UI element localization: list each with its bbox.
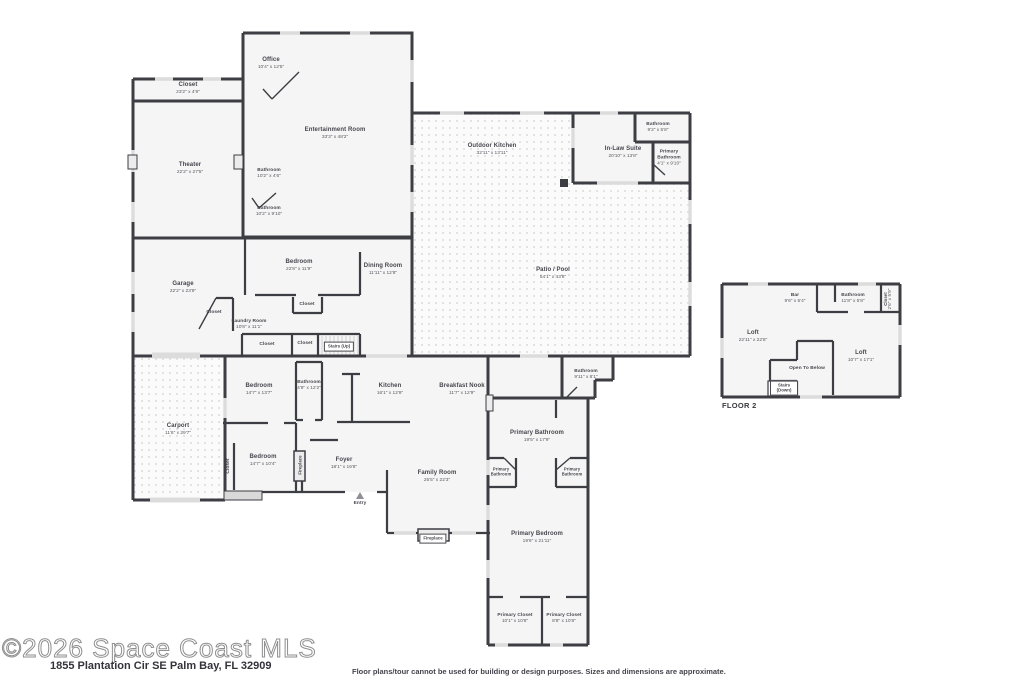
room-label-outdoor-kitchen: Outdoor Kitchen 32'11" x 13'11" (468, 143, 517, 157)
room-label-bath-lower: Bathroom 10'2" x 9'10" (256, 206, 282, 218)
room-label-f2-loft-main: Loft 22'11" x 22'8" (739, 330, 768, 344)
room-label-family-room: Family Room 25'5" x 22'3" (418, 470, 457, 484)
room-label-primary-bath-wc-left: Primary Bathroom (487, 467, 515, 478)
room-label-carport: Carport 11'6" x 29'7" (165, 423, 191, 437)
room-label-f2-bathroom: Bathroom 11'8" x 5'8" (841, 293, 864, 305)
room-label-entertainment: Entertainment Room 33'3" x 48'2" (305, 127, 366, 141)
disclaimer-text: Floor plans/tour cannot be used for buil… (352, 667, 726, 676)
entry-direction-icon (356, 492, 364, 499)
room-label-bath-upper: Bathroom 10'2" x 4'6" (257, 168, 281, 180)
column-post (560, 179, 568, 187)
room-label-inlaw-bath: Bathroom 9'2" x 5'8" (646, 122, 669, 134)
room-label-closet-garage: Closet (206, 310, 221, 316)
room-label-foyer: Foyer 18'1" x 16'8" (331, 457, 357, 471)
room-label-inlaw-primary-bath: Primary Bathroom 4'1" x 9'10" (654, 150, 684, 169)
room-label-closet-bedroom-low: Closet (226, 458, 232, 473)
room-label-stairs-up: Stairs (Up) (324, 334, 354, 355)
room-label-bedroom-top: Bedroom 22'8" x 11'9" (285, 259, 312, 273)
room-label-laundry: Laundry Room 10'8" x 11'1" (231, 319, 266, 331)
room-label-primary-closet-right: Primary Closet 8'8" x 10'8" (546, 613, 581, 625)
room-label-bath-hall: Bathroom 9'11" x 8'1" (574, 369, 597, 381)
room-label-f2-stairs-down: Stairs (Down) (770, 378, 796, 399)
room-label-primary-bedroom: Primary Bedroom 19'6" x 21'11" (511, 531, 563, 545)
room-label-office: Office 10'4" x 12'5" (258, 57, 284, 71)
room-label-theater: Theater 22'2" x 27'5" (177, 162, 203, 176)
room-label-f2-closet: Closet 2'6" x 5'9" (883, 289, 895, 310)
room-label-closet-top: Closet 23'2" x 4'9" (176, 82, 200, 96)
room-label-breakfast-nook: Breakfast Nook 11'7" x 12'9" (439, 383, 484, 397)
room-label-f2-loft-right: Loft 10'7" x 17'1" (848, 350, 874, 364)
room-label-closet-hall-small: Closet (297, 341, 312, 347)
room-label-bath-mid: Bathroom 4'9" x 12'2" (297, 380, 321, 392)
room-label-primary-bath-wc-right: Primary Bathroom (558, 467, 586, 478)
room-label-closet-hall-wide: Closet (259, 342, 274, 348)
room-label-bedroom-low: Bedroom 14'7" x 10'4" (249, 454, 276, 468)
room-fills (133, 33, 900, 645)
room-label-fireplace-family: Fireplace (419, 526, 446, 547)
room-label-inlaw-suite: In-Law Suite 20'10" x 13'8" (605, 146, 642, 160)
floor2-title: FLOOR 2 (722, 401, 757, 410)
room-label-kitchen: Kitchen 16'1" x 12'9" (377, 383, 403, 397)
property-address: 1855 Plantation Cir SE Palm Bay, FL 3290… (50, 660, 272, 672)
floorplan-drawing (0, 0, 1024, 683)
room-label-entry: Entry (354, 501, 367, 507)
room-label-garage: Garage 22'2" x 23'9" (170, 281, 196, 295)
room-label-f2-open-to-below: Open To Below (789, 366, 825, 372)
room-label-fireplace-side: Fireplace (297, 455, 302, 474)
room-label-f2-bar: Bar 9'6" x 5'4" (785, 293, 806, 305)
room-label-primary-bath: Primary Bathroom 19'5" x 17'9" (510, 430, 564, 444)
room-label-dining: Dining Room 11'11" x 12'8" (364, 263, 402, 277)
room-label-patio-pool: Patio / Pool 54'1" x 43'8" (536, 267, 570, 281)
room-label-bedroom-mid: Bedroom 14'7" x 13'7" (245, 383, 272, 397)
room-label-closet-bedroom: Closet (299, 302, 314, 308)
room-label-primary-closet-left: Primary Closet 10'1" x 10'8" (497, 613, 532, 625)
floorplan-page: { "watermark": "©2026 Space Coast MLS", … (0, 0, 1024, 683)
